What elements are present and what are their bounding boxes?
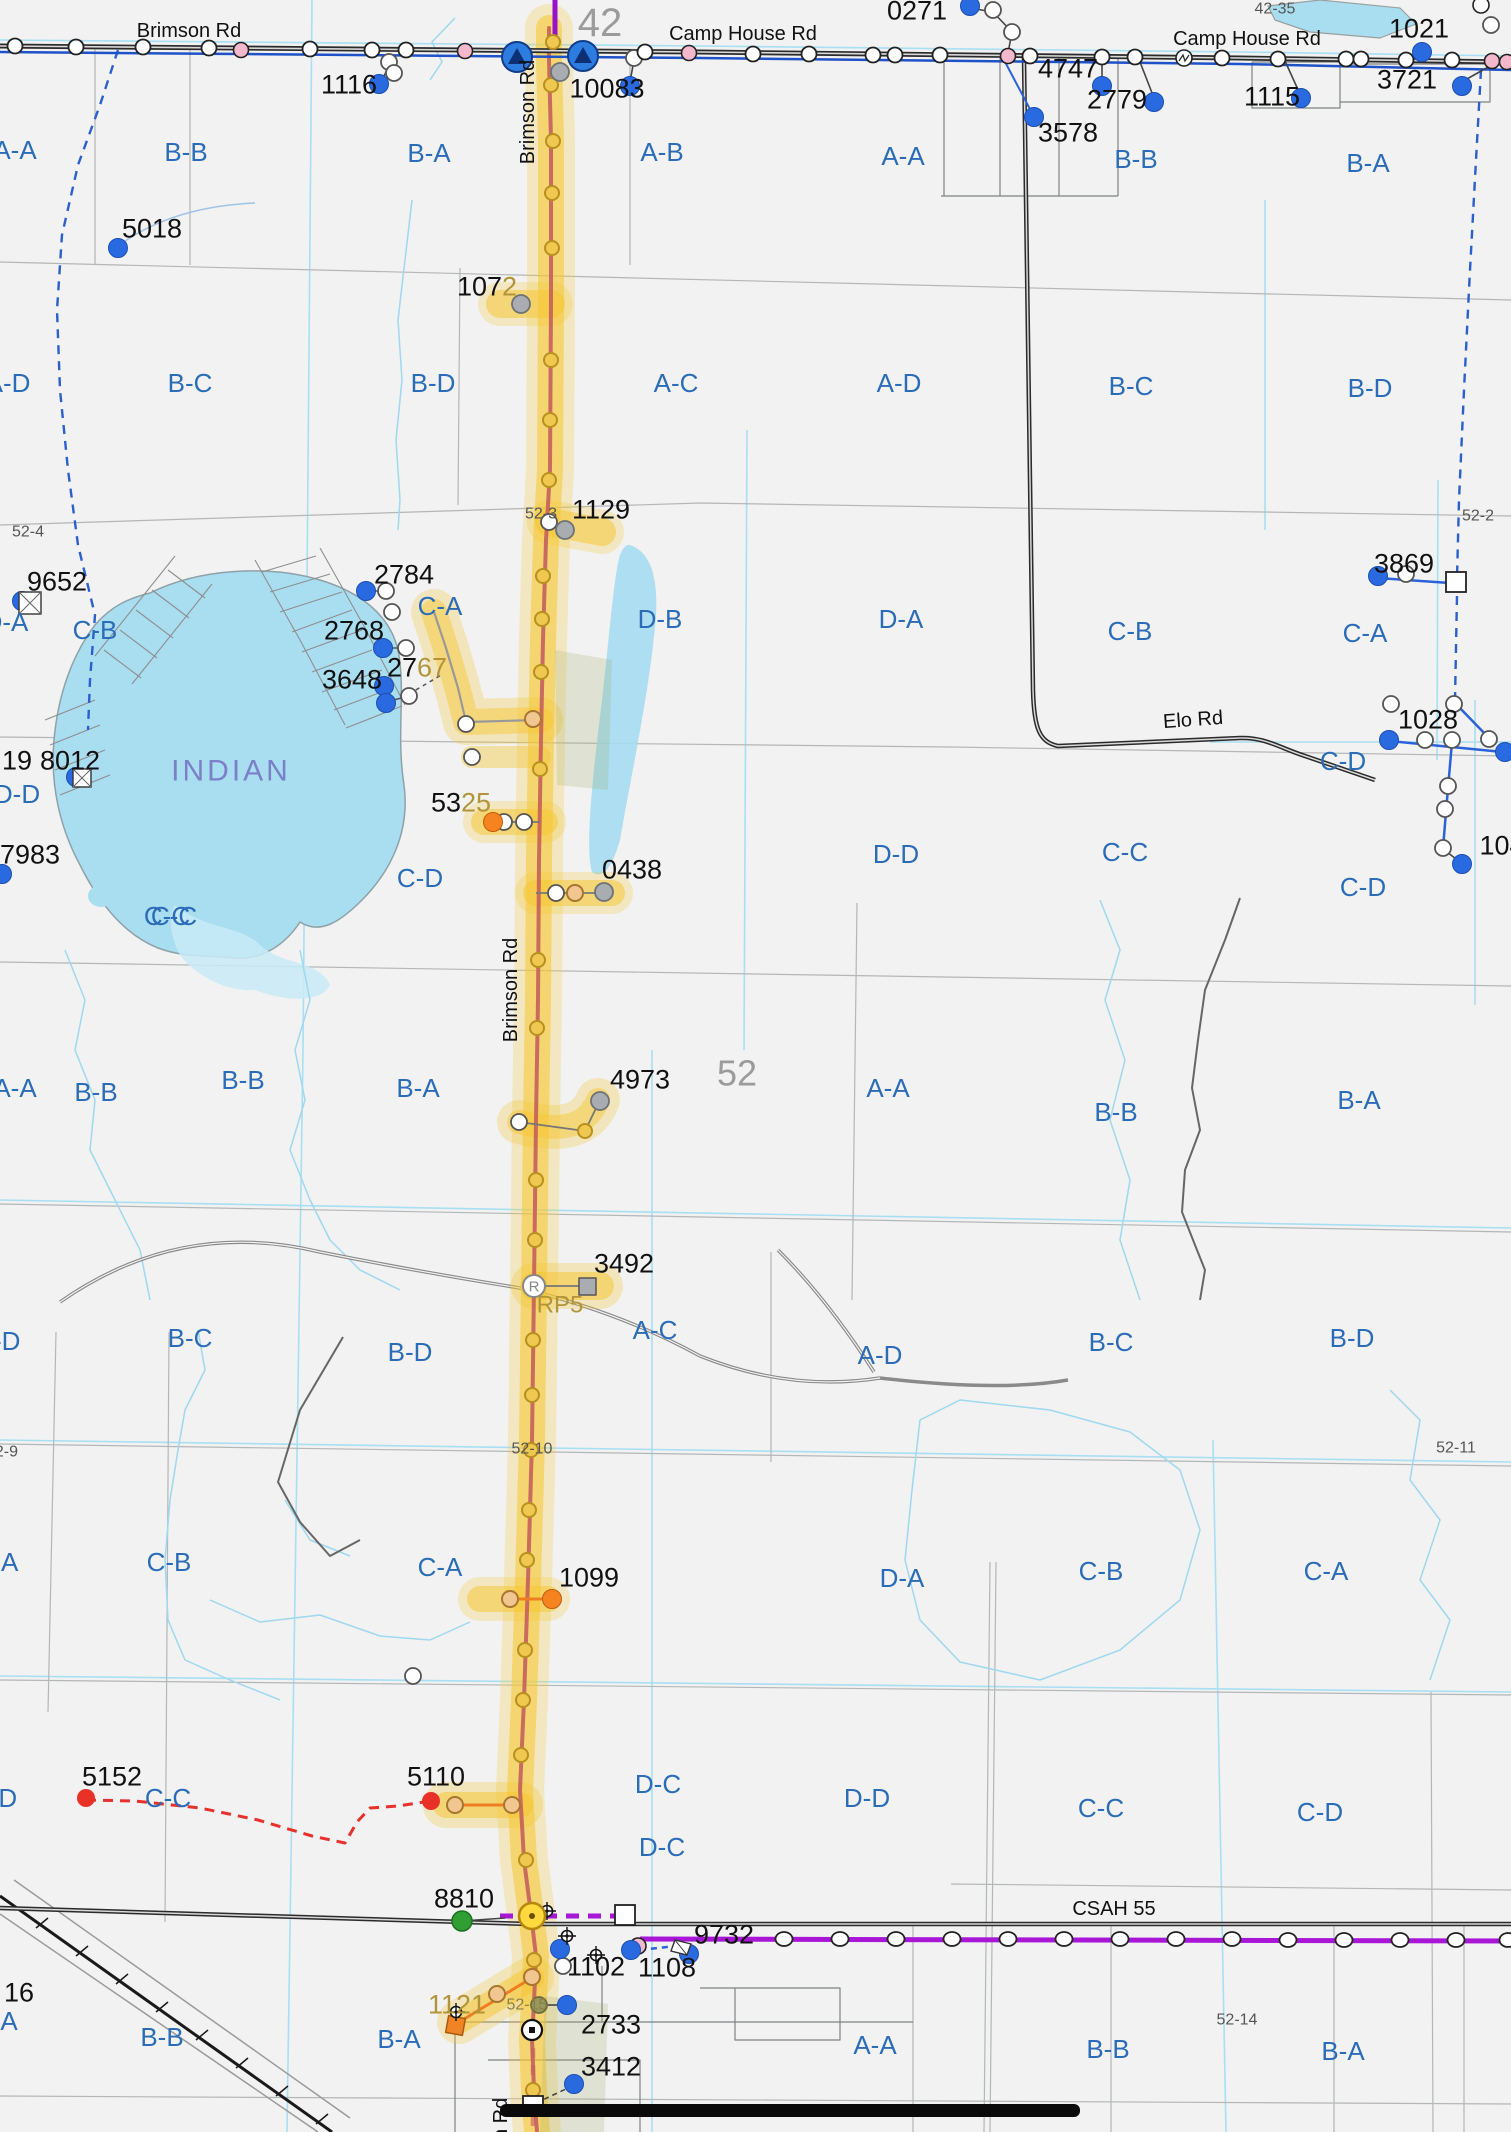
- section-label: B-A: [1337, 1085, 1381, 1115]
- csah55-pole[interactable]: [1280, 1933, 1297, 1947]
- chain-point[interactable]: [1483, 17, 1499, 33]
- road-pole[interactable]: [1271, 52, 1286, 67]
- section-label: C-D: [397, 863, 443, 893]
- section-label: C-C: [144, 901, 190, 931]
- member-label[interactable]: 2768: [324, 615, 384, 645]
- route-pole[interactable]: [546, 134, 560, 148]
- section-label: B-D: [1330, 1323, 1375, 1353]
- regulator-icon[interactable]: [519, 1903, 545, 1929]
- member-label[interactable]: 2779: [1087, 84, 1147, 114]
- section-label: A-C: [654, 368, 699, 398]
- pink-point[interactable]: [1001, 49, 1016, 64]
- scale-bar: [500, 2104, 1080, 2117]
- member-label[interactable]: 5325: [431, 787, 491, 817]
- road-name-label: Camp House Rd: [669, 23, 817, 45]
- section-label: C-B: [1079, 1556, 1124, 1586]
- tan-point[interactable]: [524, 1969, 540, 1985]
- csah55-pole[interactable]: [1224, 1932, 1241, 1946]
- road-pole[interactable]: [202, 41, 217, 56]
- section-label: C-A: [1304, 1556, 1349, 1586]
- green-point[interactable]: [452, 1911, 472, 1931]
- route-pole[interactable]: [526, 2083, 540, 2097]
- route-pole[interactable]: [528, 1233, 542, 1247]
- member-label[interactable]: 2784: [374, 559, 434, 589]
- road-name-label: Camp House Rd: [1173, 28, 1321, 50]
- section-label: A-D: [858, 1340, 903, 1370]
- chain-point[interactable]: [1383, 696, 1399, 712]
- transformer-icon[interactable]: [568, 41, 598, 71]
- route-pole[interactable]: [542, 473, 556, 487]
- road-name-label: Brimson Rd: [500, 938, 522, 1042]
- section-label: C-C: [1102, 837, 1148, 867]
- section-label: B-D: [388, 1337, 433, 1367]
- section-label: B-A: [0, 2006, 18, 2036]
- section-label: A-A: [853, 2030, 897, 2060]
- section-label: B-B: [1094, 1097, 1137, 1127]
- member-label[interactable]: 0438: [602, 854, 662, 884]
- section-label: B-B: [74, 1077, 117, 1107]
- road-pole[interactable]: [746, 47, 761, 62]
- route-pole[interactable]: [514, 1748, 528, 1762]
- route-pole[interactable]: [519, 1853, 533, 1867]
- route-pole[interactable]: [520, 1553, 534, 1567]
- section-label: A-D: [877, 368, 922, 398]
- grid-label: 52-2: [1462, 508, 1494, 525]
- section-label: B-A: [1346, 148, 1390, 178]
- pink-point[interactable]: [234, 43, 249, 58]
- section-label: B-B: [164, 137, 207, 167]
- member-label[interactable]: 5152: [82, 1761, 142, 1791]
- csah55-pole[interactable]: [1112, 1932, 1129, 1946]
- grid-label: 42-35: [1255, 1, 1296, 18]
- member-label[interactable]: 3648: [322, 664, 382, 694]
- route-pole[interactable]: [545, 186, 559, 200]
- grid-label: 42: [578, 1, 623, 45]
- member-point[interactable]: [1380, 731, 1399, 750]
- chain-point[interactable]: [1435, 840, 1451, 856]
- route-pole[interactable]: [543, 413, 557, 427]
- member-label[interactable]: 4747: [1038, 53, 1098, 83]
- section-label: D-D: [844, 1783, 890, 1813]
- road-pole[interactable]: [1339, 52, 1354, 67]
- chain-point[interactable]: [1437, 801, 1453, 817]
- grid-label: 52-11: [1436, 1440, 1476, 1457]
- route-pole[interactable]: [527, 1953, 541, 1967]
- csah55-pole[interactable]: [776, 1932, 793, 1946]
- member-label[interactable]: 3578: [1038, 117, 1098, 147]
- member-point[interactable]: [357, 582, 376, 601]
- section-label: B-B: [221, 1065, 264, 1095]
- chain-point[interactable]: [1440, 778, 1456, 794]
- csah55-pole[interactable]: [1056, 1932, 1073, 1946]
- member-label[interactable]: 2767: [387, 652, 447, 682]
- member-label[interactable]: 4973: [610, 1064, 670, 1094]
- chain-point[interactable]: [405, 1668, 421, 1684]
- route-pole[interactable]: [578, 1124, 592, 1138]
- member-label[interactable]: 16: [4, 1977, 34, 2007]
- route-pole[interactable]: [529, 1173, 543, 1187]
- chain-point[interactable]: [401, 688, 417, 704]
- route-pole[interactable]: [525, 1388, 539, 1402]
- route-pole[interactable]: [530, 1021, 544, 1035]
- section-label: D-A: [879, 604, 924, 634]
- chain-point[interactable]: [548, 885, 564, 901]
- csah55-pole[interactable]: [1500, 1933, 1511, 1947]
- section-label: B-D: [1348, 373, 1393, 403]
- csah55-purple-line: [640, 1939, 1511, 1941]
- chain-point[interactable]: [458, 716, 474, 732]
- section-label: C-D: [1340, 872, 1386, 902]
- section-label: B-C: [168, 368, 213, 398]
- section-label: D-D: [873, 839, 919, 869]
- road-name-label: Elo Rd: [1162, 707, 1223, 733]
- road-name-label: Brimson Rd: [517, 60, 539, 164]
- section-label: A-C: [633, 1315, 678, 1345]
- section-label: D-C: [639, 1832, 685, 1862]
- section-label: B-A: [396, 1073, 440, 1103]
- grid-label: 52-9: [0, 1444, 18, 1461]
- section-label: A-A: [0, 1073, 37, 1103]
- chain-point[interactable]: [985, 2, 1001, 18]
- member-label[interactable]: 9732: [694, 1919, 754, 1949]
- chain-point[interactable]: [511, 1114, 527, 1130]
- member-label[interactable]: 1021: [1389, 13, 1449, 43]
- member-point[interactable]: [1453, 855, 1472, 874]
- gray-point[interactable]: [595, 883, 613, 901]
- section-label: B-A: [407, 138, 451, 168]
- member-label[interactable]: 3492: [594, 1248, 654, 1278]
- section-label: C-C: [145, 1783, 191, 1813]
- tan-point[interactable]: [504, 1797, 520, 1813]
- member-point[interactable]: [1496, 743, 1511, 762]
- road-pole[interactable]: [1215, 51, 1230, 66]
- road-name-label: Brimson Rd: [137, 20, 241, 42]
- member-label[interactable]: 7983: [0, 839, 60, 869]
- road-pole[interactable]: [399, 43, 414, 58]
- member-label[interactable]: 1108: [638, 1952, 696, 1982]
- section-label: A-D: [0, 368, 30, 398]
- grid-label: 52-4: [12, 524, 44, 541]
- pink-point[interactable]: [682, 46, 697, 61]
- member-label[interactable]: 1028: [1398, 704, 1458, 734]
- member-label[interactable]: 3869: [1374, 548, 1434, 578]
- section-label: D-A: [0, 607, 29, 637]
- route-pole[interactable]: [536, 569, 550, 583]
- member-label[interactable]: 104: [1479, 830, 1511, 860]
- section-label: C-D: [0, 1783, 17, 1813]
- grid-label: 52: [717, 1053, 757, 1094]
- route-pole[interactable]: [531, 953, 545, 967]
- section-label: D-A: [0, 1547, 19, 1577]
- member-label[interactable]: 1121: [428, 1989, 486, 2019]
- member-label[interactable]: 3721: [1377, 64, 1437, 94]
- section-label: B-B: [1086, 2034, 1129, 2064]
- fuse-icon[interactable]: [1176, 50, 1192, 66]
- member-label[interactable]: 1072: [457, 271, 517, 301]
- section-label: C-D: [1320, 746, 1366, 776]
- route-pole[interactable]: [516, 1693, 530, 1707]
- road-pole[interactable]: [8, 39, 23, 54]
- road-pole[interactable]: [365, 43, 380, 58]
- section-label: C-B: [73, 615, 118, 645]
- member-label[interactable]: 1129: [572, 494, 630, 524]
- section-label: C-A: [418, 1552, 463, 1582]
- member-label[interactable]: RP5: [537, 1291, 584, 1318]
- device-square-icon[interactable]: [1446, 572, 1466, 592]
- section-label: B-A: [1321, 2036, 1365, 2066]
- road-pole[interactable]: [1354, 52, 1369, 67]
- route-pole[interactable]: [533, 762, 547, 776]
- route-pole[interactable]: [545, 241, 559, 255]
- member-label[interactable]: 8810: [434, 1883, 494, 1913]
- road-pole[interactable]: [888, 48, 903, 63]
- section-label: B-A: [377, 2024, 421, 2054]
- member-label[interactable]: 1115: [1244, 81, 1300, 111]
- member-label[interactable]: 19: [2, 745, 32, 775]
- route-pole[interactable]: [546, 35, 560, 49]
- road-pole[interactable]: [638, 45, 653, 60]
- route-pole[interactable]: [544, 353, 558, 367]
- junction-icon[interactable]: [522, 2020, 542, 2040]
- section-label: C-C: [1078, 1793, 1124, 1823]
- section-label: A-A: [0, 135, 37, 165]
- land-tint: [555, 650, 612, 790]
- route-pole[interactable]: [535, 612, 549, 626]
- tan-point[interactable]: [502, 1591, 518, 1607]
- road-name-label: CSAH 55: [1072, 1898, 1155, 1920]
- section-label: A-A: [866, 1073, 910, 1103]
- chain-point[interactable]: [384, 604, 400, 620]
- csah55-pole[interactable]: [832, 1932, 849, 1946]
- route-pole[interactable]: [522, 1503, 536, 1517]
- section-label: D-A: [880, 1563, 925, 1593]
- lake: [144, 884, 166, 902]
- pink-point[interactable]: [1500, 55, 1511, 70]
- route-pole[interactable]: [534, 665, 548, 679]
- road-pole[interactable]: [303, 42, 318, 57]
- section-label: B-D: [411, 368, 456, 398]
- red-point[interactable]: [422, 1792, 440, 1810]
- section-label: B-C: [1089, 1327, 1134, 1357]
- gray-point[interactable]: [551, 63, 569, 81]
- member-point[interactable]: [1453, 77, 1472, 96]
- member-label[interactable]: 8012: [40, 745, 100, 775]
- member-point[interactable]: [558, 1996, 577, 2015]
- gray-point[interactable]: [591, 1092, 609, 1110]
- member-point[interactable]: [961, 0, 980, 16]
- csah55-pole[interactable]: [944, 1932, 961, 1946]
- member-label[interactable]: 9652: [27, 566, 87, 596]
- section-label: B-B: [140, 2022, 183, 2052]
- chain-point[interactable]: [386, 65, 402, 81]
- grid-label: 52-10: [512, 1441, 553, 1458]
- section-label: B-C: [168, 1323, 213, 1353]
- csah55-pole[interactable]: [1336, 1933, 1353, 1947]
- pink-point[interactable]: [1485, 54, 1500, 69]
- map-viewport[interactable]: R111610083027147472779357811153721102150…: [0, 0, 1511, 2132]
- section-label: C-B: [1108, 616, 1153, 646]
- section-label: C-A: [418, 591, 463, 621]
- lake-name-label: INDIAN: [171, 755, 291, 788]
- route-pole[interactable]: [526, 1333, 540, 1347]
- member-point[interactable]: [1145, 93, 1164, 112]
- tan-point[interactable]: [447, 1797, 463, 1813]
- road-pole[interactable]: [69, 40, 84, 55]
- section-label: A-D: [0, 1326, 20, 1356]
- csah55-pole[interactable]: [1448, 1933, 1465, 1947]
- grid-label: 52-14: [1217, 2012, 1258, 2029]
- member-label[interactable]: 1116: [321, 69, 377, 99]
- road-pole[interactable]: [1445, 53, 1460, 68]
- section-label: C-B: [147, 1547, 192, 1577]
- member-point[interactable]: [1413, 43, 1432, 62]
- section-label: C-D: [1297, 1797, 1343, 1827]
- red-point[interactable]: [77, 1789, 95, 1807]
- grid-label: 52-15: [507, 1997, 548, 2014]
- tan-point[interactable]: [489, 1986, 505, 2002]
- chain-point[interactable]: [1481, 731, 1497, 747]
- member-label[interactable]: 10083: [569, 73, 644, 103]
- member-point[interactable]: [377, 694, 396, 713]
- road-pole[interactable]: [1023, 49, 1038, 64]
- chain-point[interactable]: [1004, 24, 1020, 40]
- csah55-pole[interactable]: [1000, 1932, 1017, 1946]
- road-pole[interactable]: [866, 48, 881, 63]
- map-canvas[interactable]: R111610083027147472779357811153721102150…: [0, 0, 1511, 2132]
- road-pole[interactable]: [1128, 50, 1143, 65]
- section-label: C-A: [1343, 618, 1388, 648]
- section-label: A-A: [881, 141, 925, 171]
- tan-point[interactable]: [525, 711, 541, 727]
- road-pole[interactable]: [933, 48, 948, 63]
- section-label: D-D: [0, 779, 40, 809]
- member-label[interactable]: 1102: [567, 1951, 625, 1981]
- route-pole[interactable]: [518, 1643, 532, 1657]
- csah55-pole[interactable]: [888, 1932, 905, 1946]
- csah55-pole[interactable]: [1168, 1932, 1185, 1946]
- device-icon[interactable]: [1473, 0, 1489, 13]
- chain-point[interactable]: [516, 814, 532, 830]
- section-label: B-B: [1114, 144, 1157, 174]
- member-label[interactable]: 0271: [887, 0, 947, 25]
- member-label[interactable]: 3412: [581, 2051, 641, 2081]
- road-pole[interactable]: [802, 47, 817, 62]
- member-label[interactable]: 5110: [407, 1761, 465, 1791]
- csah55-pole[interactable]: [1392, 1933, 1409, 1947]
- grid-label: 52-3: [525, 506, 557, 523]
- device-square-icon[interactable]: [615, 1905, 635, 1925]
- section-label: D-C: [635, 1769, 681, 1799]
- member-label[interactable]: 1099: [559, 1562, 619, 1592]
- section-label: D-B: [638, 604, 683, 634]
- member-label[interactable]: 5018: [122, 213, 182, 243]
- lake: [88, 885, 114, 907]
- pink-point[interactable]: [458, 44, 473, 59]
- chain-point[interactable]: [464, 749, 480, 765]
- tan-point[interactable]: [567, 885, 583, 901]
- section-label: A-B: [640, 137, 683, 167]
- member-label[interactable]: 2733: [581, 2009, 641, 2039]
- section-label: B-C: [1109, 371, 1154, 401]
